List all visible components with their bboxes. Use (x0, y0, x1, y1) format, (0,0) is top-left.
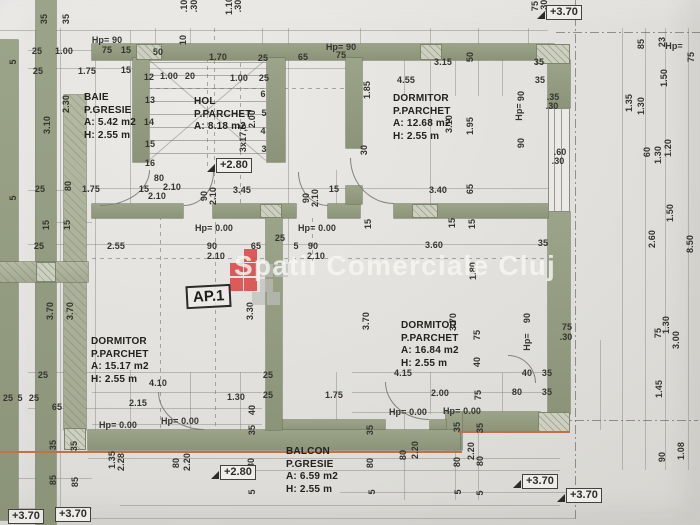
dimension-label: 2.10 (307, 251, 325, 261)
extension-line (230, 470, 560, 471)
dimension-label: 40 (247, 405, 257, 415)
level-value: +3.70 (522, 474, 558, 489)
extension-line (645, 28, 646, 470)
dimension-label: .10 (179, 0, 189, 12)
dimension-label: 15 (329, 184, 339, 194)
extension-line (120, 505, 560, 506)
extension-line (575, 0, 576, 522)
dimension-label: 5 (8, 195, 18, 200)
dimension-label: 25 (29, 393, 39, 403)
dimension-label: 80 (365, 458, 375, 468)
dimension-label: 20 (185, 71, 195, 81)
dimension-label: 1.00 (160, 71, 178, 81)
dimension-label: 25 (275, 233, 285, 243)
dimension-label: .30 (233, 0, 243, 12)
room-area: A: 15.17 m2 (91, 361, 149, 374)
dimension-label: Hp= 90 (92, 35, 122, 45)
room-finish: P.GRESIE (84, 105, 136, 118)
wall-segment (267, 58, 285, 162)
wall-segment (346, 58, 362, 148)
level-marker: +2.80 (220, 462, 256, 480)
wall-segment (92, 204, 183, 218)
stair-tread (150, 62, 266, 63)
dimension-label: 35 (247, 425, 257, 435)
dimension-label: 90 (516, 91, 526, 101)
dimension-label: 15 (62, 220, 72, 230)
room-label-dormitor-3: DORMITOR P.PARCHET A: 16.84 m2 H: 2.55 m (401, 320, 459, 370)
room-area: A: 5.42 m2 (84, 117, 136, 130)
room-name: DORMITOR (401, 320, 459, 333)
dimension-label: 15 (121, 65, 131, 75)
level-marker: +2.80 (216, 155, 252, 173)
dimension-label: 65 (52, 402, 62, 412)
stair-tread (150, 88, 266, 89)
dimension-label: 2.60 (647, 230, 657, 248)
dimension-label: 35 (538, 238, 548, 248)
dimension-label: 3.70 (45, 302, 55, 320)
room-name: DORMITOR (91, 336, 149, 349)
level-marker: +3.70 (546, 2, 582, 20)
extension-line (288, 28, 289, 262)
extension-line (478, 28, 479, 96)
dimension-label: Hp= 0.00 (195, 223, 233, 233)
wall-pier (260, 204, 282, 218)
dimension-label: 1.75 (82, 184, 100, 194)
dimension-label: 3 (261, 144, 266, 154)
dimension-label: 85 (70, 477, 80, 487)
dimension-label: Hp= 0.00 (443, 406, 481, 416)
dimension-label: Hp= 0.00 (99, 420, 137, 430)
dimension-label: 4 (260, 126, 265, 136)
dimension-label: 35 (542, 368, 552, 378)
dimension-label: 40 (522, 368, 532, 378)
dimension-label: 15 (447, 218, 457, 228)
level-marker: +3.70 (8, 506, 44, 524)
dimension-label: 2.20 (410, 441, 420, 459)
room-height: H: 2.55 m (393, 131, 451, 144)
dimension-label: 8.50 (685, 235, 695, 253)
dimension-label: 3.70 (361, 312, 371, 330)
level-value: +3.70 (55, 507, 91, 522)
dimension-label: 1.95 (465, 117, 475, 135)
extension-line (240, 372, 241, 432)
dimension-label: 90 (207, 241, 217, 251)
dimension-label: 80 (475, 456, 485, 466)
dimension-label: 15 (41, 220, 51, 230)
dimension-label: 5 (293, 241, 298, 251)
dimension-label: 25 (33, 66, 43, 76)
dimension-label: 1.00 (55, 46, 73, 56)
dimension-label: 75 (562, 322, 572, 332)
dimension-label: 3.70 (65, 302, 75, 320)
dimension-label: 25 (263, 370, 273, 380)
extension-line (622, 28, 623, 470)
extension-line (455, 58, 456, 96)
dimension-label: 1.75 (325, 390, 343, 400)
logo-gray-square (260, 279, 273, 292)
level-value: +2.80 (216, 158, 252, 173)
room-label-hol: HOL P.PARCHET A: 8.18 m2 (194, 96, 252, 134)
dimension-label: 35 (534, 57, 544, 67)
room-finish: P.PARCHET (194, 109, 252, 122)
dimension-label: 75 (473, 390, 483, 400)
extension-line (556, 32, 700, 33)
logo-red-square (230, 263, 243, 276)
dimension-label: 1.50 (665, 204, 675, 222)
dimension-label: 35 (475, 423, 485, 433)
dimension-label: 35 (61, 14, 71, 24)
room-height: H: 2.55 m (84, 130, 136, 143)
room-area: A: 6.59 m2 (286, 471, 338, 484)
dimension-label: 80 (452, 457, 462, 467)
dimension-label: 80 (171, 458, 181, 468)
dimension-label: 25 (32, 46, 42, 56)
dimension-label: 2.00 (431, 388, 449, 398)
dimension-label: .30 (189, 0, 199, 12)
dimension-label: 2.10 (148, 191, 166, 201)
dimension-label: 85 (48, 475, 58, 485)
room-label-baie: BAIE P.GRESIE A: 5.42 m2 H: 2.55 m (84, 92, 136, 142)
dimension-label: 1.80 (468, 262, 478, 280)
dimension-label: 1.85 (362, 81, 372, 99)
extension-line (88, 518, 575, 519)
dimension-label: 90 (308, 241, 318, 251)
dimension-label: 25 (38, 370, 48, 380)
dimension-label: 1.08 (676, 442, 686, 460)
dimension-label: 90 (657, 452, 667, 462)
level-marker-flag-icon (211, 471, 219, 479)
dimension-label: 5 (453, 489, 463, 494)
dimension-label: 1.70 (209, 52, 227, 62)
extension-line (558, 420, 698, 421)
dimension-label: 25 (34, 241, 44, 251)
dimension-label: 4.10 (149, 378, 167, 388)
wall-segment (88, 430, 460, 450)
stair-tread (150, 140, 266, 141)
level-marker: +3.70 (522, 471, 558, 489)
dimension-label: 1.35 (624, 94, 634, 112)
room-finish: P.PARCHET (393, 106, 451, 119)
dimension-label: 25 (3, 393, 13, 403)
dimension-label: 12 (144, 72, 154, 82)
dimension-label: 85 (636, 39, 646, 49)
dimension-label: 16 (145, 158, 155, 168)
wall-segment (328, 204, 360, 218)
dimension-label: Hp= 0.00 (389, 407, 427, 417)
dimension-label: Hp= (665, 41, 683, 51)
level-marker: +3.70 (55, 504, 91, 522)
wall-segment (548, 212, 570, 414)
room-height: H: 2.55 m (286, 484, 338, 497)
dimension-label: .30 (546, 101, 559, 111)
dimension-label: 15 (145, 139, 155, 149)
room-height: H: 2.55 m (401, 358, 459, 371)
room-finish: P.GRESIE (286, 459, 338, 472)
dimension-label: .30 (560, 332, 573, 342)
dimension-label: 80 (398, 450, 408, 460)
dimension-label: 1.00 (230, 73, 248, 83)
dimension-label: 15 (121, 45, 131, 55)
dimension-label: 60 (642, 147, 652, 157)
wall-pier (538, 412, 570, 432)
level-marker-flag-icon (207, 164, 215, 172)
level-marker: +3.70 (566, 485, 602, 503)
room-finish: P.PARCHET (91, 349, 149, 362)
dimension-label: Hp= (514, 103, 524, 121)
dimension-label: 6 (260, 89, 265, 99)
room-name: DORMITOR (393, 93, 451, 106)
dimension-label: 13 (145, 95, 155, 105)
dimension-label: 25 (259, 73, 269, 83)
logo-red-square (244, 249, 257, 262)
room-area: A: 16.84 m2 (401, 345, 459, 358)
room-area: A: 8.18 m2 (194, 121, 252, 134)
dimension-label: 35 (39, 14, 49, 24)
dimension-label: 1.30 (636, 97, 646, 115)
wall-pier (412, 204, 438, 218)
dimension-label: 1.20 (663, 139, 673, 157)
stair-tread (150, 153, 266, 154)
dimension-label: 1.30 (227, 392, 245, 402)
dimension-label: 1.75 (78, 66, 96, 76)
dimension-label: 5 (8, 59, 18, 64)
dimension-label: 5 (367, 489, 377, 494)
room-label-dormitor-1: DORMITOR P.PARCHET A: 12.68 m2 H: 2.55 m (393, 93, 451, 143)
level-value: +3.70 (546, 5, 582, 20)
dimension-label: 35 (542, 387, 552, 397)
room-name: BAIE (84, 92, 136, 105)
room-label-balcon: BALCON P.GRESIE A: 6.59 m2 H: 2.55 m (286, 446, 338, 496)
dimension-label: 65 (465, 184, 475, 194)
dimension-label: 3.60 (425, 240, 443, 250)
dimension-label: 1.45 (654, 380, 664, 398)
dimension-label: 75 (686, 52, 696, 62)
dimension-label: 80 (512, 387, 522, 397)
dimension-label: 40 (472, 357, 482, 367)
room-name: HOL (194, 96, 252, 109)
dimension-label: 3.15 (434, 57, 452, 67)
dimension-label: 80 (63, 181, 73, 191)
room-area: A: 12.68 m2 (393, 118, 451, 131)
room-height: H: 2.55 m (91, 374, 149, 387)
dimension-label: 25 (258, 53, 268, 63)
dimension-label: 14 (144, 117, 154, 127)
dimension-label: 35 (48, 440, 58, 450)
dimension-label: 2.15 (129, 398, 147, 408)
dimension-label: Hp= 0.00 (161, 416, 199, 426)
dimension-label: 25 (35, 184, 45, 194)
dimension-label: 5 (247, 489, 257, 494)
dimension-label: 90 (516, 138, 526, 148)
level-value: +2.80 (220, 465, 256, 480)
dimension-label: 2.20 (182, 453, 192, 471)
dimension-label: .30 (552, 156, 565, 166)
logo-gray-square (260, 264, 273, 277)
level-marker-flag-icon (557, 494, 565, 502)
dimension-label: 23 (657, 37, 667, 47)
wall-segment (346, 186, 362, 204)
dimension-label: 2.30 (61, 95, 71, 113)
dimension-label: 1.50 (659, 69, 669, 87)
extension-line (28, 244, 548, 245)
logo-red-square (244, 278, 257, 291)
room-label-dormitor-2: DORMITOR P.PARCHET A: 15.17 m2 H: 2.55 m (91, 336, 149, 386)
dimension-label: 25 (263, 390, 273, 400)
dimension-label: 65 (298, 52, 308, 62)
dimension-label: 3.45 (233, 185, 251, 195)
dimension-label: 30 (359, 145, 369, 155)
extension-line (502, 58, 503, 96)
wall-pier (36, 262, 56, 282)
dimension-label: 35 (452, 422, 462, 432)
dimension-label: 3.40 (429, 185, 447, 195)
balcony-accent-line (0, 451, 462, 453)
dimension-label: 2.28 (116, 453, 126, 471)
dimension-label: 50 (465, 52, 475, 62)
dimension-label: 1.30 (661, 316, 671, 334)
dimension-label: 35 (365, 425, 375, 435)
dimension-label: 75 (102, 45, 112, 55)
room-name: BALCON (286, 446, 338, 459)
dimension-label: 5 (261, 108, 266, 118)
dimension-label: 15 (467, 219, 477, 229)
level-value: +3.70 (566, 488, 602, 503)
dimension-label: 90 (522, 313, 532, 323)
dimension-label: 35 (535, 75, 545, 85)
extension-line (600, 340, 601, 430)
apartment-label: AP.1 (185, 284, 232, 309)
dimension-label: 4.55 (397, 75, 415, 85)
dimension-label: 10 (178, 35, 188, 45)
dimension-label: 35 (69, 441, 79, 451)
dimension-label: 5 (17, 393, 22, 403)
wall-segment (213, 204, 296, 218)
level-value: +3.70 (8, 509, 44, 524)
dimension-label: 15 (363, 219, 373, 229)
logo-red-square (230, 278, 243, 291)
dimension-label: 5 (475, 490, 485, 495)
extension-line (28, 68, 352, 69)
dimension-label: 1.30 (653, 146, 663, 164)
dimension-label: Hp= 90 (326, 42, 356, 52)
dimension-label: 75 (472, 330, 482, 340)
dimension-label: Hp= (522, 333, 532, 351)
floor-plan-canvas: 251.007515251.7515501.00201.70251.002565… (0, 0, 700, 525)
level-marker-flag-icon (513, 480, 521, 488)
dimension-label: 2.10 (207, 251, 225, 261)
dimension-label: Hp= 0.00 (298, 223, 336, 233)
dimension-label: 3.00 (671, 331, 681, 349)
logo-gray-square (275, 264, 288, 277)
dimension-label: 2.55 (107, 241, 125, 251)
dimension-label: 2.10 (208, 187, 218, 205)
logo-red-square (244, 263, 257, 276)
extension-line (0, 30, 548, 31)
room-finish: P.PARCHET (401, 333, 459, 346)
logo-gray-square (267, 292, 280, 305)
extension-line (665, 28, 666, 470)
dimension-label: 50 (153, 47, 163, 57)
level-marker-flag-icon (537, 11, 545, 19)
dimension-label: 2.10 (310, 189, 320, 207)
logo-gray-square (252, 292, 265, 305)
dimension-label: 3.10 (42, 116, 52, 134)
